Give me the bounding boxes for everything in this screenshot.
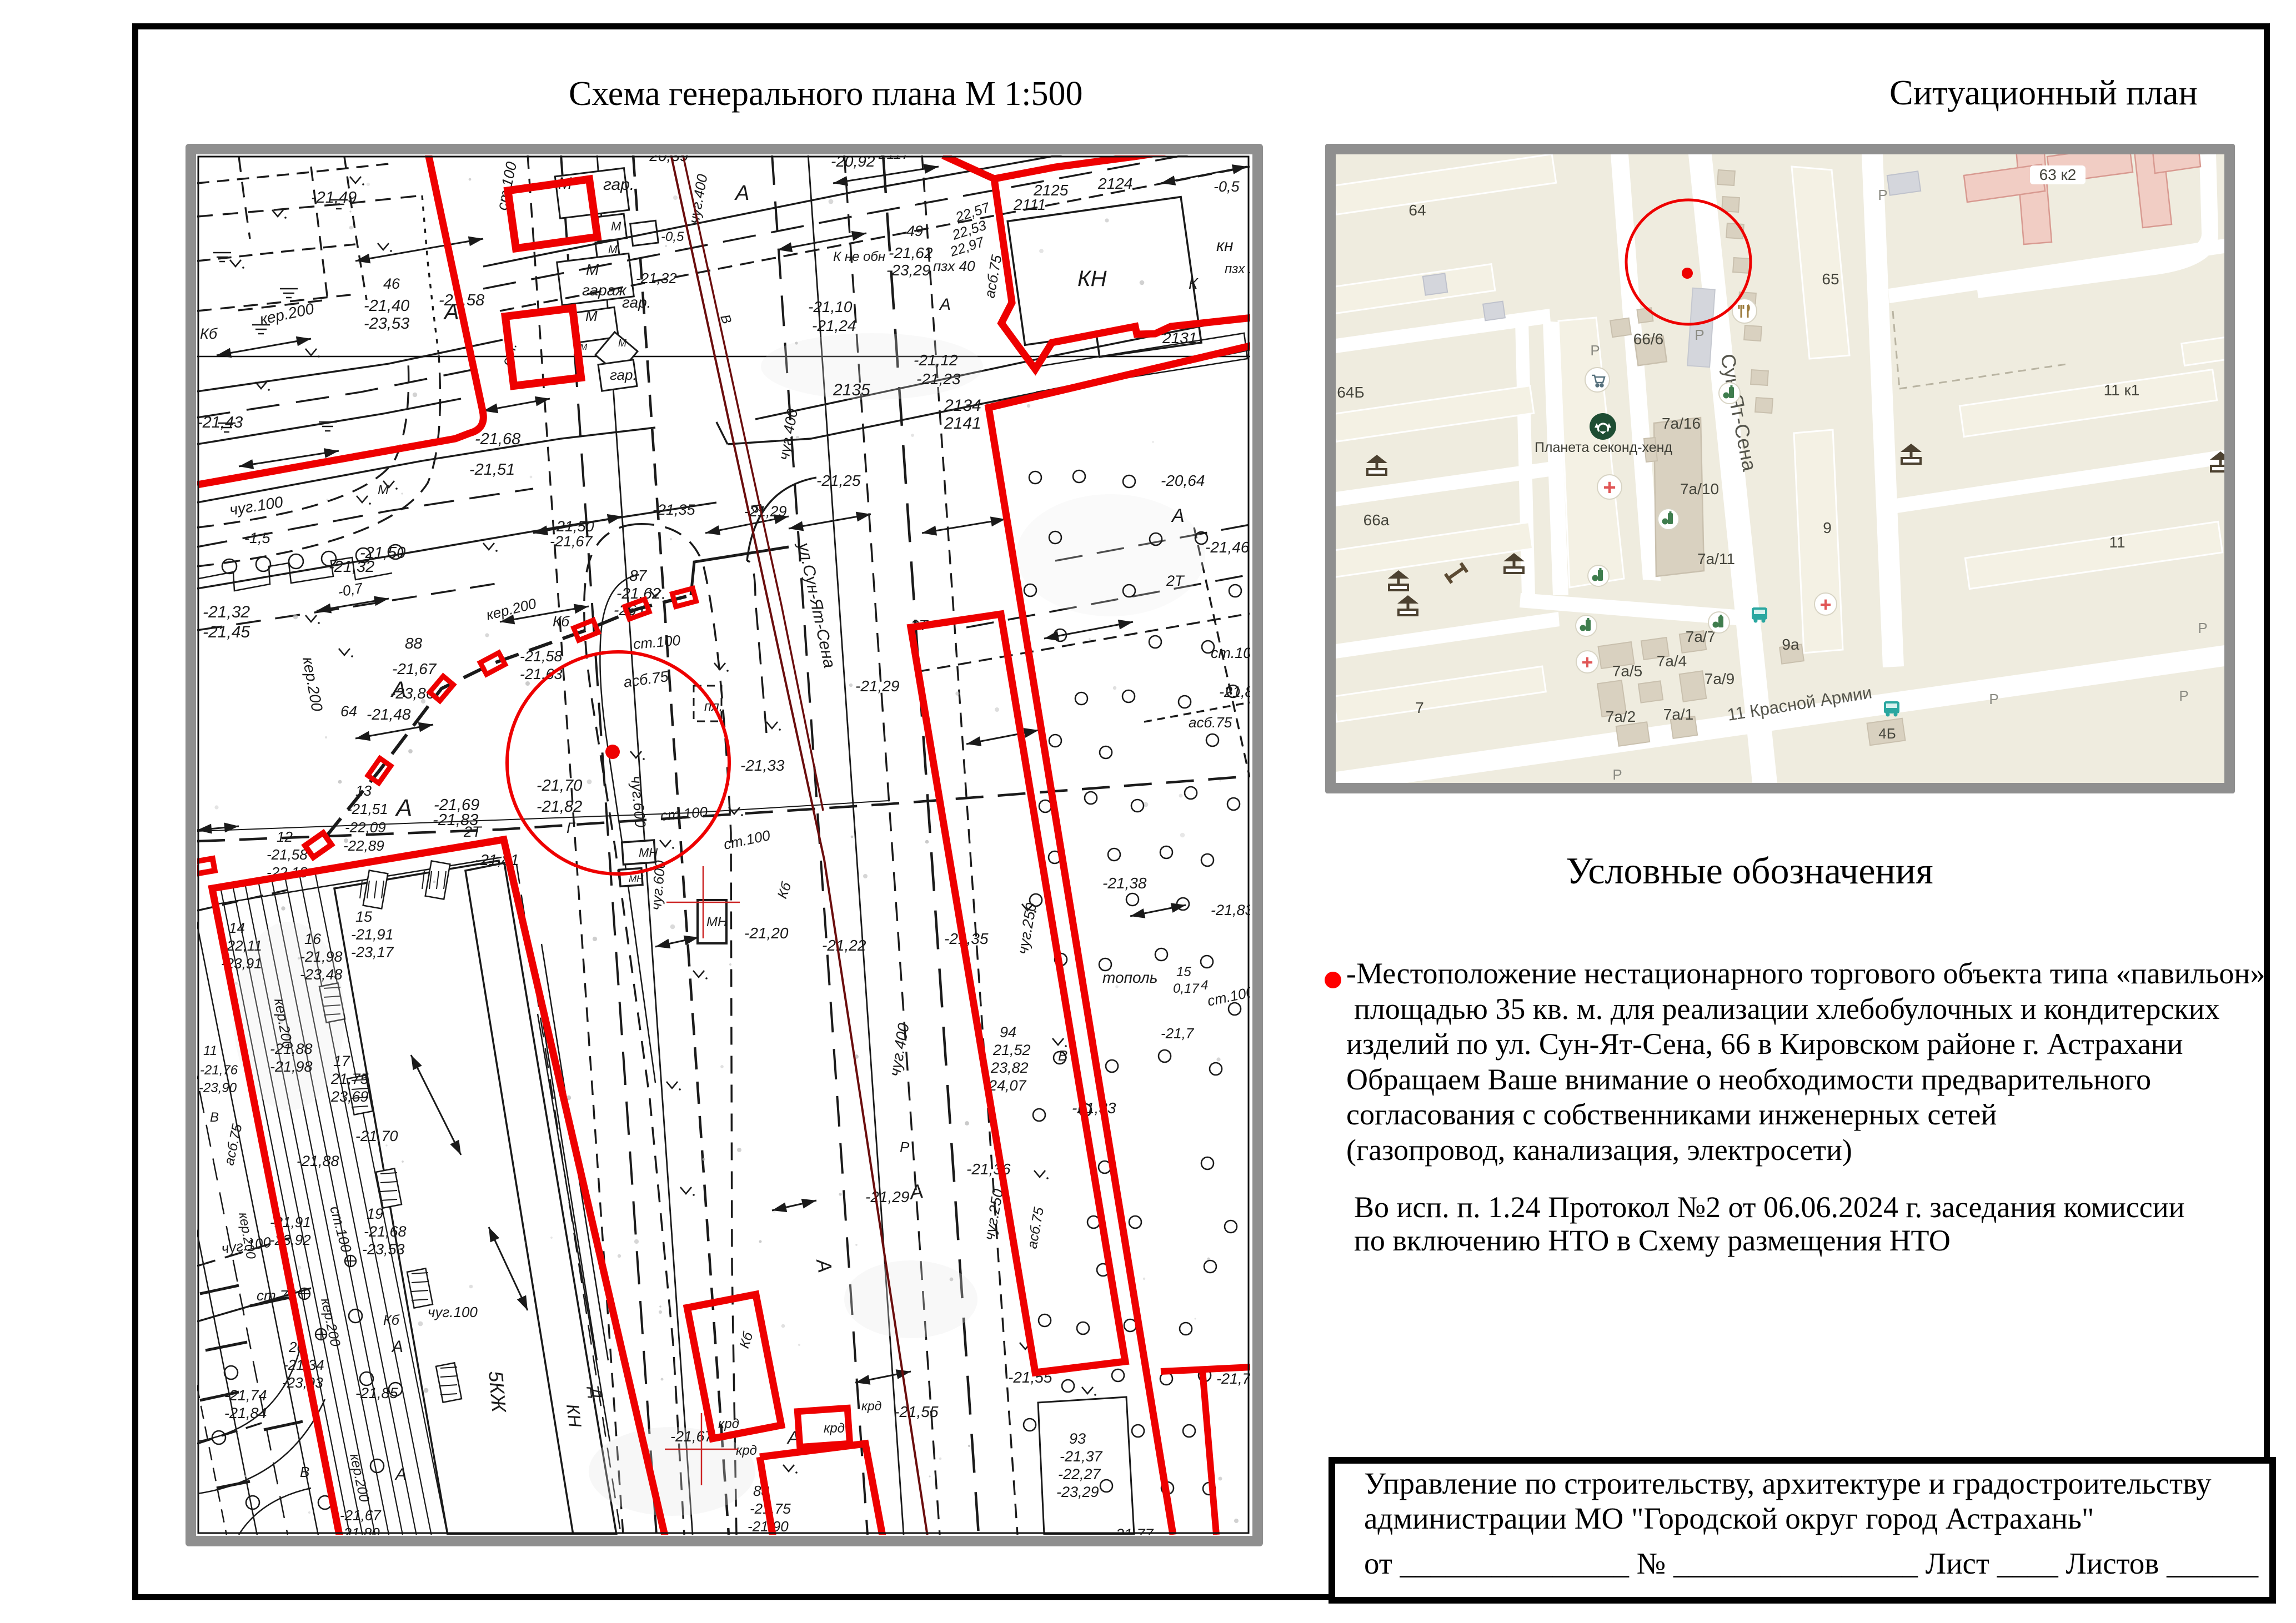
svg-text:Р: Р xyxy=(1612,766,1622,783)
svg-text:Р: Р xyxy=(2179,687,2188,704)
svg-text:Р: Р xyxy=(2201,138,2210,154)
svg-text:Р: Р xyxy=(1878,187,1887,203)
svg-text:7а/9: 7а/9 xyxy=(1705,670,1735,687)
svg-text:7а/10: 7а/10 xyxy=(1680,480,1719,498)
svg-text:64Б: 64Б xyxy=(1337,384,1365,401)
svg-text:9а: 9а xyxy=(1782,636,1799,653)
svg-text:66а: 66а xyxy=(1363,511,1390,529)
svg-text:Р: Р xyxy=(1695,326,1704,343)
svg-text:65: 65 xyxy=(1822,270,1839,288)
svg-text:+: + xyxy=(1603,475,1616,500)
svg-text:11 к1: 11 к1 xyxy=(2104,381,2140,399)
svg-text:66/6: 66/6 xyxy=(1633,330,1664,348)
svg-text:4Б: 4Б xyxy=(1878,725,1896,742)
svg-text:7а/1: 7а/1 xyxy=(1663,706,1694,723)
svg-text:64: 64 xyxy=(1408,202,1426,219)
svg-text:11: 11 xyxy=(2109,534,2125,551)
svg-text:7а/11: 7а/11 xyxy=(1697,550,1735,567)
svg-text:+: + xyxy=(1819,593,1831,616)
svg-text:63 к2: 63 к2 xyxy=(2039,166,2077,183)
svg-text:Р: Р xyxy=(2198,620,2207,636)
svg-text:+: + xyxy=(1581,651,1593,674)
svg-text:7а/16: 7а/16 xyxy=(1662,415,1701,432)
svg-text:7а/7: 7а/7 xyxy=(1686,628,1716,645)
svg-text:Р: Р xyxy=(1590,342,1600,359)
svg-text:7а/4: 7а/4 xyxy=(1657,652,1687,670)
svg-text:7а/5: 7а/5 xyxy=(1612,662,1643,680)
svg-text:7а/2: 7а/2 xyxy=(1606,708,1636,725)
svg-text:Р: Р xyxy=(1989,691,1998,707)
svg-text:9: 9 xyxy=(1823,519,1832,536)
svg-text:7: 7 xyxy=(1415,699,1424,716)
svg-text:Планета секонд-хенд: Планета секонд-хенд xyxy=(1535,440,1673,455)
